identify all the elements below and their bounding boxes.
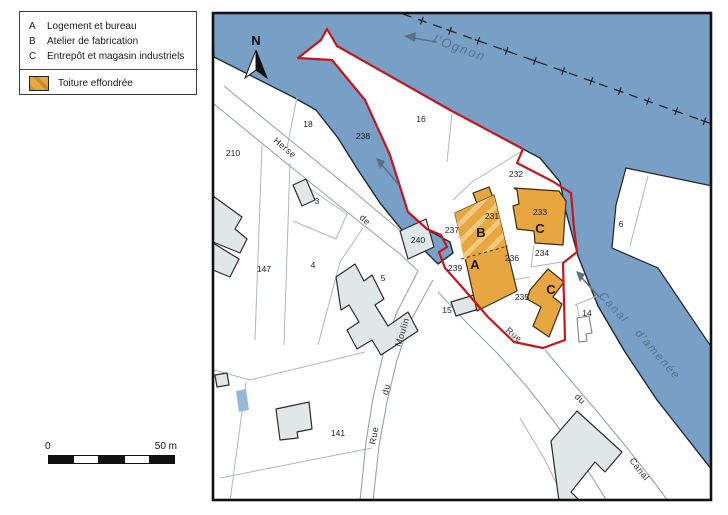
scale-bar: 0 50 m	[45, 441, 177, 464]
parcel-label: 210	[226, 148, 240, 158]
scale-bar-graphic	[48, 455, 175, 464]
building-c-lower	[527, 269, 564, 337]
building-letter: B	[476, 225, 485, 240]
parcel-label: 238	[356, 131, 370, 141]
legend-item-collapsed-roof: Toiture effondrée	[29, 76, 192, 91]
parcel-label: 16	[416, 114, 426, 124]
building-14	[577, 316, 592, 342]
legend-item-b: B Atelier de fabrication	[29, 35, 192, 48]
parcel-label: 236	[505, 253, 519, 263]
street-label: Herse	[272, 135, 299, 160]
legend-label-a: Logement et bureau	[47, 20, 137, 33]
parcel-label: 232	[509, 169, 523, 179]
legend-divider	[20, 69, 198, 70]
scale-start-label: 0	[45, 441, 51, 452]
building	[213, 196, 247, 253]
north-label: N	[251, 33, 260, 48]
parcel-label: 4	[311, 260, 316, 270]
legend-item-c: C Entrepôt et magasin industriels	[29, 50, 192, 63]
scale-end-label: 50 m	[155, 441, 177, 452]
parcel-label: 5	[381, 273, 386, 283]
collapsed-roof-label: Toiture effondrée	[58, 77, 133, 90]
street-label: du	[380, 383, 392, 396]
legend-label-c: Entrepôt et magasin industriels	[47, 50, 184, 63]
building-letter: C	[546, 282, 556, 297]
street-label: Canal	[627, 456, 651, 483]
street-label: du	[573, 391, 588, 406]
legend-item-a: A Logement et bureau	[29, 20, 192, 33]
street-label: Rue	[368, 426, 381, 445]
parcel-label: 234	[535, 248, 549, 258]
building-141	[276, 402, 312, 440]
collapsed-roof-swatch	[29, 76, 49, 91]
parcel-label: 14	[582, 308, 592, 318]
legend-key-b: B	[29, 35, 47, 48]
building-small-square	[215, 373, 229, 387]
building-se	[551, 411, 622, 501]
legend-key-a: A	[29, 20, 47, 33]
map-figure: l'OgnonCanald'amenée HersedeRueduCanalRu…	[0, 0, 728, 515]
legend-label-b: Atelier de fabrication	[47, 35, 138, 48]
parcel-label: 3	[315, 196, 320, 206]
parcel-label: 15	[442, 305, 452, 315]
legend: A Logement et bureau B Atelier de fabric…	[19, 11, 197, 95]
building-letter: C	[535, 221, 545, 236]
parcel-label: 141	[331, 428, 345, 438]
parcel-label: 231	[485, 211, 499, 221]
parcel-label: 147	[257, 264, 271, 274]
street-label: de	[358, 212, 373, 227]
building-letter: A	[470, 257, 480, 272]
parcel-label: 18	[303, 119, 313, 129]
building-mill	[336, 264, 418, 355]
parcel-label: 239	[448, 263, 462, 273]
parcel-label: 237	[445, 225, 459, 235]
pool	[236, 389, 249, 412]
parcel-label: 233	[533, 207, 547, 217]
parcel-label: 235	[515, 292, 529, 302]
parcel-label: 6	[619, 219, 624, 229]
parcel-label: 240	[411, 235, 425, 245]
legend-key-c: C	[29, 50, 47, 63]
